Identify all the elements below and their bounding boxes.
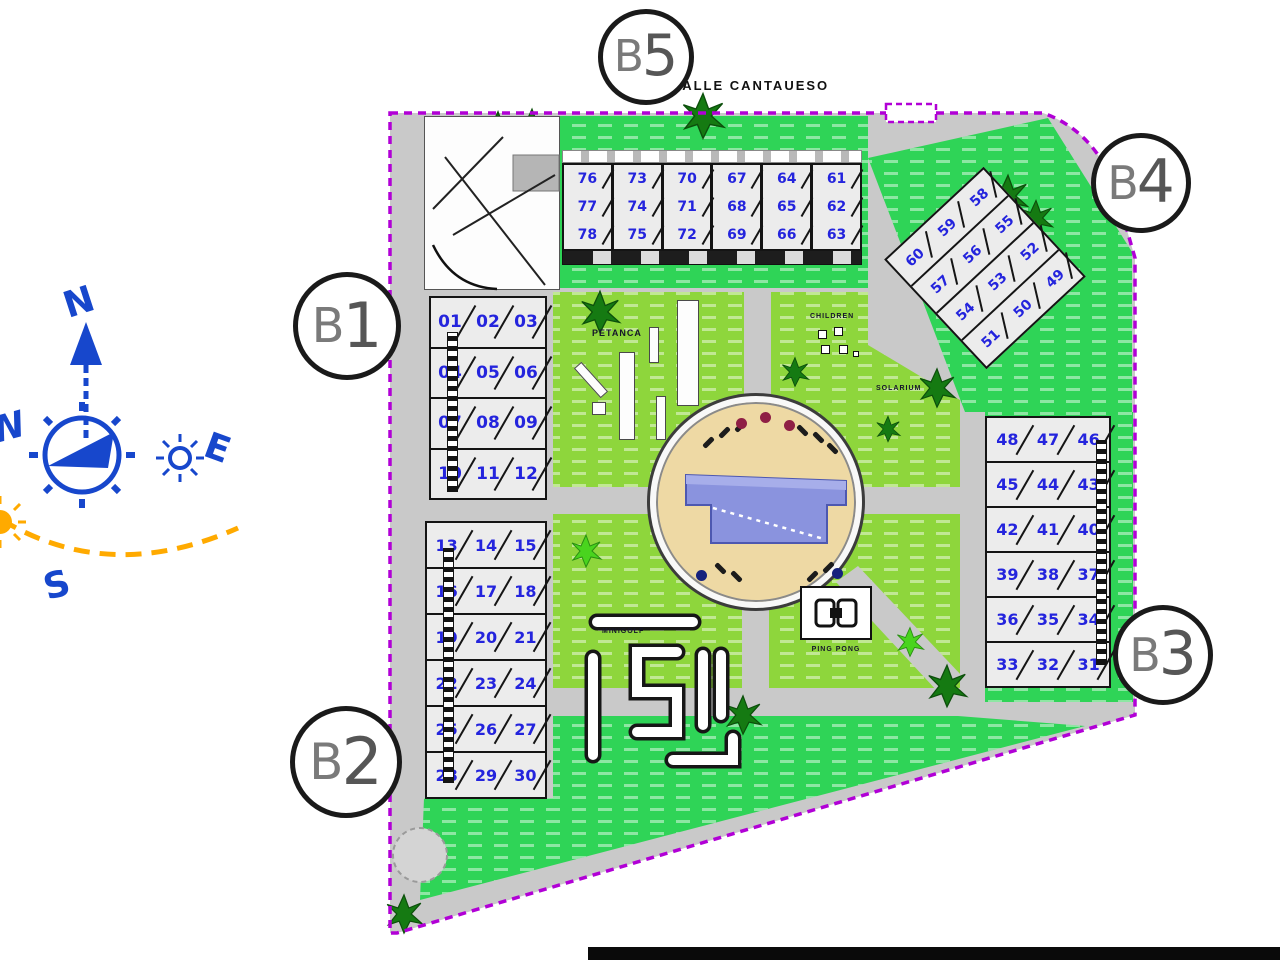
unit-05: 05 [469, 349, 507, 398]
play-equipment-icon [853, 351, 859, 357]
unit-row: 333231 [987, 643, 1109, 686]
east-sun-rays [156, 434, 204, 482]
unit-11: 11 [469, 450, 507, 499]
existing-building [424, 116, 560, 290]
marker-b4-digit: 4 [1137, 153, 1175, 213]
unit-69: 69 [713, 221, 763, 249]
marker-b5-digit: 5 [642, 28, 678, 85]
unit-32: 32 [1028, 643, 1069, 686]
unit-42: 42 [987, 508, 1028, 551]
ping-pong-icon [802, 588, 870, 638]
unit-74: 74 [614, 193, 664, 221]
sun-icon [0, 510, 12, 534]
unit-08: 08 [469, 399, 507, 448]
minigolf-piece [673, 738, 733, 760]
marker-b1: B 1 [293, 272, 401, 380]
umbrella-icon [760, 412, 771, 423]
building-line [433, 137, 503, 209]
table-net [830, 608, 842, 618]
unit-73: 73 [614, 165, 664, 193]
unit-row: 787572696663 [564, 221, 860, 249]
unit-75: 75 [614, 221, 664, 249]
path-west [550, 487, 660, 514]
unit-63: 63 [813, 221, 860, 249]
building-block-31-48: 484746454443424140393837363534333231 [985, 416, 1111, 688]
petanca-court [592, 402, 606, 415]
unit-68: 68 [713, 193, 763, 221]
sun-path-arc [2, 520, 238, 555]
building-block-61-78: 767370676461777471686562787572696663 [562, 163, 862, 251]
unit-09: 09 [507, 399, 545, 448]
unit-26: 26 [466, 707, 505, 751]
unit-36: 36 [987, 598, 1028, 641]
east-sun-icon [170, 448, 190, 468]
patio-strip [562, 150, 862, 163]
petanca-court [656, 396, 666, 440]
label-children: CHILDREN [810, 313, 854, 320]
unit-06: 06 [507, 349, 545, 398]
unit-row: 767370676461 [564, 165, 860, 193]
unit-row: 363534 [987, 598, 1109, 643]
unit-67: 67 [713, 165, 763, 193]
unit-78: 78 [564, 221, 614, 249]
porch-strip [1096, 440, 1107, 665]
unit-41: 41 [1028, 508, 1069, 551]
marker-b2-prefix: B [309, 737, 343, 787]
play-equipment-icon [818, 330, 827, 339]
unit-23: 23 [466, 661, 505, 705]
unit-64: 64 [763, 165, 813, 193]
marker-b4: B 4 [1091, 133, 1191, 233]
unit-77: 77 [564, 193, 614, 221]
unit-45: 45 [987, 463, 1028, 506]
marker-b3-prefix: B [1129, 632, 1161, 678]
existing-building-lines [425, 117, 561, 291]
play-equipment-icon [821, 345, 830, 354]
garage-strip [562, 250, 862, 265]
porch-strip [443, 548, 454, 783]
unit-12: 12 [507, 450, 545, 499]
petanca-court [619, 352, 635, 440]
unit-30: 30 [506, 753, 545, 797]
unit-14: 14 [466, 523, 505, 567]
play-equipment-icon [839, 345, 848, 354]
pool-plaza [650, 396, 862, 608]
unit-row: 424140 [987, 508, 1109, 553]
unit-48: 48 [987, 418, 1028, 461]
marker-b3-digit: 3 [1159, 625, 1197, 685]
unit-03: 03 [507, 298, 545, 347]
minigolf-course [575, 610, 745, 770]
unit-row: 393837 [987, 553, 1109, 598]
marker-b4-prefix: B [1107, 160, 1139, 206]
label-minigolf: MINIGOLF [602, 628, 644, 635]
unit-44: 44 [1028, 463, 1069, 506]
unit-24: 24 [506, 661, 545, 705]
compass-needle-head [70, 322, 102, 365]
play-equipment-icon [834, 327, 843, 336]
path-east [855, 487, 965, 514]
compass-pointer [48, 432, 114, 468]
unit-02: 02 [469, 298, 507, 347]
unit-18: 18 [506, 569, 545, 613]
unit-17: 17 [466, 569, 505, 613]
unit-39: 39 [987, 553, 1028, 596]
porch-strip [447, 332, 458, 492]
unit-20: 20 [466, 615, 505, 659]
umbrella-icon [832, 568, 843, 579]
marker-b1-prefix: B [312, 302, 345, 350]
unit-27: 27 [506, 707, 545, 751]
marker-b2: B 2 [290, 706, 402, 818]
unit-72: 72 [664, 221, 714, 249]
unit-65: 65 [763, 193, 813, 221]
unit-15: 15 [506, 523, 545, 567]
umbrella-icon [736, 418, 747, 429]
unit-29: 29 [466, 753, 505, 797]
unit-76: 76 [564, 165, 614, 193]
unit-47: 47 [1028, 418, 1069, 461]
petanca-court [649, 327, 659, 363]
umbrella-icon [696, 570, 707, 581]
unit-62: 62 [813, 193, 860, 221]
site-entrance [886, 104, 936, 122]
marker-b5: B 5 [598, 9, 694, 105]
unit-row: 777471686562 [564, 193, 860, 221]
unit-71: 71 [664, 193, 714, 221]
label-ping-pong: PING PONG [800, 646, 872, 653]
path-south [742, 605, 769, 693]
marker-b1-digit: 1 [343, 295, 383, 357]
umbrella-icon [784, 420, 795, 431]
unit-66: 66 [763, 221, 813, 249]
unit-row: 454443 [987, 463, 1109, 508]
marker-b5-prefix: B [614, 35, 644, 79]
petanca-court [677, 300, 699, 406]
label-petanca: PETANCA [592, 328, 642, 338]
bottom-bar [588, 947, 1280, 960]
unit-21: 21 [506, 615, 545, 659]
label-solarium: SOLARIUM [876, 385, 921, 392]
building-line [453, 175, 555, 235]
unit-35: 35 [1028, 598, 1069, 641]
unit-61: 61 [813, 165, 860, 193]
site-plan: 767370676461777471686562787572696663 010… [0, 0, 1280, 960]
building-curve [433, 245, 497, 289]
unit-row: 484746 [987, 418, 1109, 463]
unit-33: 33 [987, 643, 1028, 686]
ping-pong-table [800, 586, 872, 640]
marker-b3: B 3 [1113, 605, 1213, 705]
marker-b2-digit: 2 [341, 730, 382, 795]
roundabout [393, 828, 447, 882]
path-north [744, 292, 771, 400]
unit-70: 70 [664, 165, 714, 193]
unit-38: 38 [1028, 553, 1069, 596]
